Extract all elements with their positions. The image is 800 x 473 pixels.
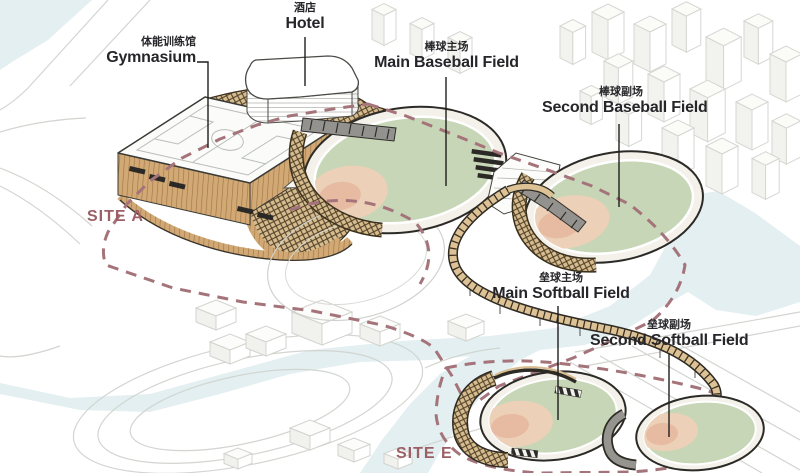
site-e-label: SITE E	[396, 445, 453, 463]
site-a-label: SITE A	[87, 208, 144, 226]
label-second-baseball-en: Second Baseball Field	[542, 99, 700, 118]
label-hotel: 酒店 Hotel	[255, 2, 355, 34]
label-main-softball-field: 垒球主场 Main Softball Field	[482, 272, 640, 304]
label-main-baseball-field: 棒球主场 Main Baseball Field	[369, 41, 524, 73]
site-plan-canvas: 体能训练馆 Gymnasium 酒店 Hotel 棒球主场 Main Baseb…	[0, 0, 800, 473]
label-second-softball-cn: 垒球副场	[590, 319, 748, 332]
label-gymnasium-cn: 体能训练馆	[28, 36, 196, 49]
label-main-softball-en: Main Softball Field	[482, 285, 640, 304]
label-second-softball-field: 垒球副场 Second Softball Field	[590, 319, 748, 351]
label-second-baseball-field: 棒球副场 Second Baseball Field	[542, 86, 700, 118]
label-hotel-cn: 酒店	[255, 2, 355, 15]
label-gymnasium: 体能训练馆 Gymnasium	[28, 36, 196, 68]
label-main-baseball-en: Main Baseball Field	[369, 54, 524, 73]
label-main-softball-cn: 垒球主场	[482, 272, 640, 285]
second-softball-field	[607, 390, 767, 473]
label-main-baseball-cn: 棒球主场	[369, 41, 524, 54]
label-second-baseball-cn: 棒球副场	[542, 86, 700, 99]
label-gymnasium-en: Gymnasium	[28, 49, 196, 68]
label-second-softball-en: Second Softball Field	[590, 332, 748, 351]
hotel-building	[246, 56, 359, 123]
label-hotel-en: Hotel	[255, 15, 355, 34]
